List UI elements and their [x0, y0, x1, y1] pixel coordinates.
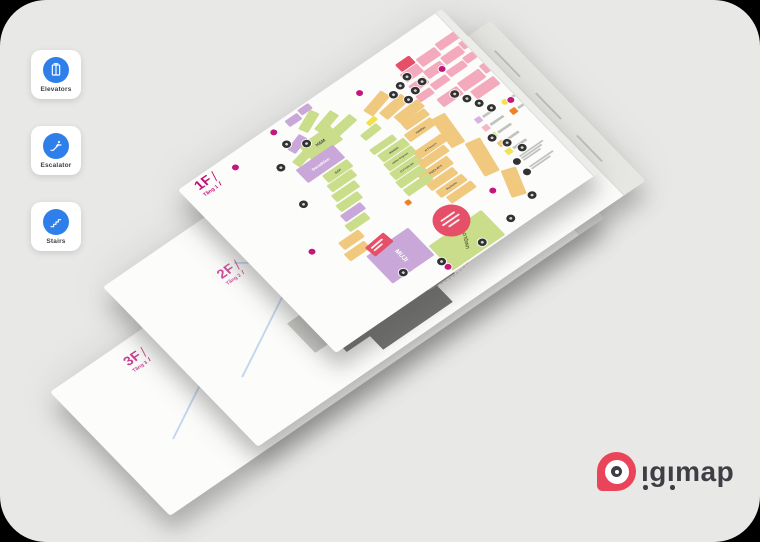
- atm-icon: [404, 199, 412, 206]
- logo-i-dot: [670, 485, 675, 490]
- escalator-button[interactable]: Escalator: [31, 126, 81, 175]
- digimap-logo: ıgımap: [597, 452, 734, 491]
- elevator-icon: [43, 57, 69, 83]
- poi-marker-magenta: [269, 128, 279, 136]
- logo-i-dot: [643, 485, 648, 490]
- poi-marker-dark: [461, 93, 474, 104]
- poi-marker-dark: [297, 199, 310, 210]
- logo-pin-icon: [597, 452, 636, 491]
- poi-marker-dark: [275, 162, 288, 173]
- logo-wordmark: ıgımap: [641, 458, 734, 486]
- store-block: [436, 86, 464, 108]
- poi-marker-magenta: [488, 186, 498, 194]
- stairs-label: Stairs: [46, 238, 65, 245]
- store-uniqlo-label: UNIQLO: [462, 232, 472, 249]
- poi-marker-dark: [394, 80, 407, 91]
- poi-marker-dark: [526, 190, 539, 201]
- store-block: [465, 137, 500, 176]
- logo-wordmark-text: ıgımap: [641, 456, 734, 487]
- poi-marker-dark: [504, 213, 517, 224]
- floor-label-3f: 3F Tầng 3: [121, 346, 154, 374]
- elevators-button[interactable]: Elevators: [31, 50, 81, 99]
- stairs-icon: [43, 209, 69, 235]
- poi-marker-magenta: [231, 163, 241, 171]
- poi-marker-magenta: [355, 89, 365, 97]
- poi-marker-magenta: [307, 248, 317, 256]
- store-block: [360, 123, 382, 141]
- elevators-label: Elevators: [40, 86, 71, 93]
- escalator-icon: [43, 133, 69, 159]
- stairs-button[interactable]: Stairs: [31, 202, 81, 251]
- poi-marker-dark: [473, 98, 486, 109]
- app-canvas: Elevators Escalator Stairs 3F Tầng 3: [0, 0, 760, 542]
- escalator-label: Escalator: [40, 162, 71, 169]
- floor-label-1f: 1F Tầng 1: [192, 170, 225, 198]
- store-muji-label: MUJI: [392, 248, 408, 263]
